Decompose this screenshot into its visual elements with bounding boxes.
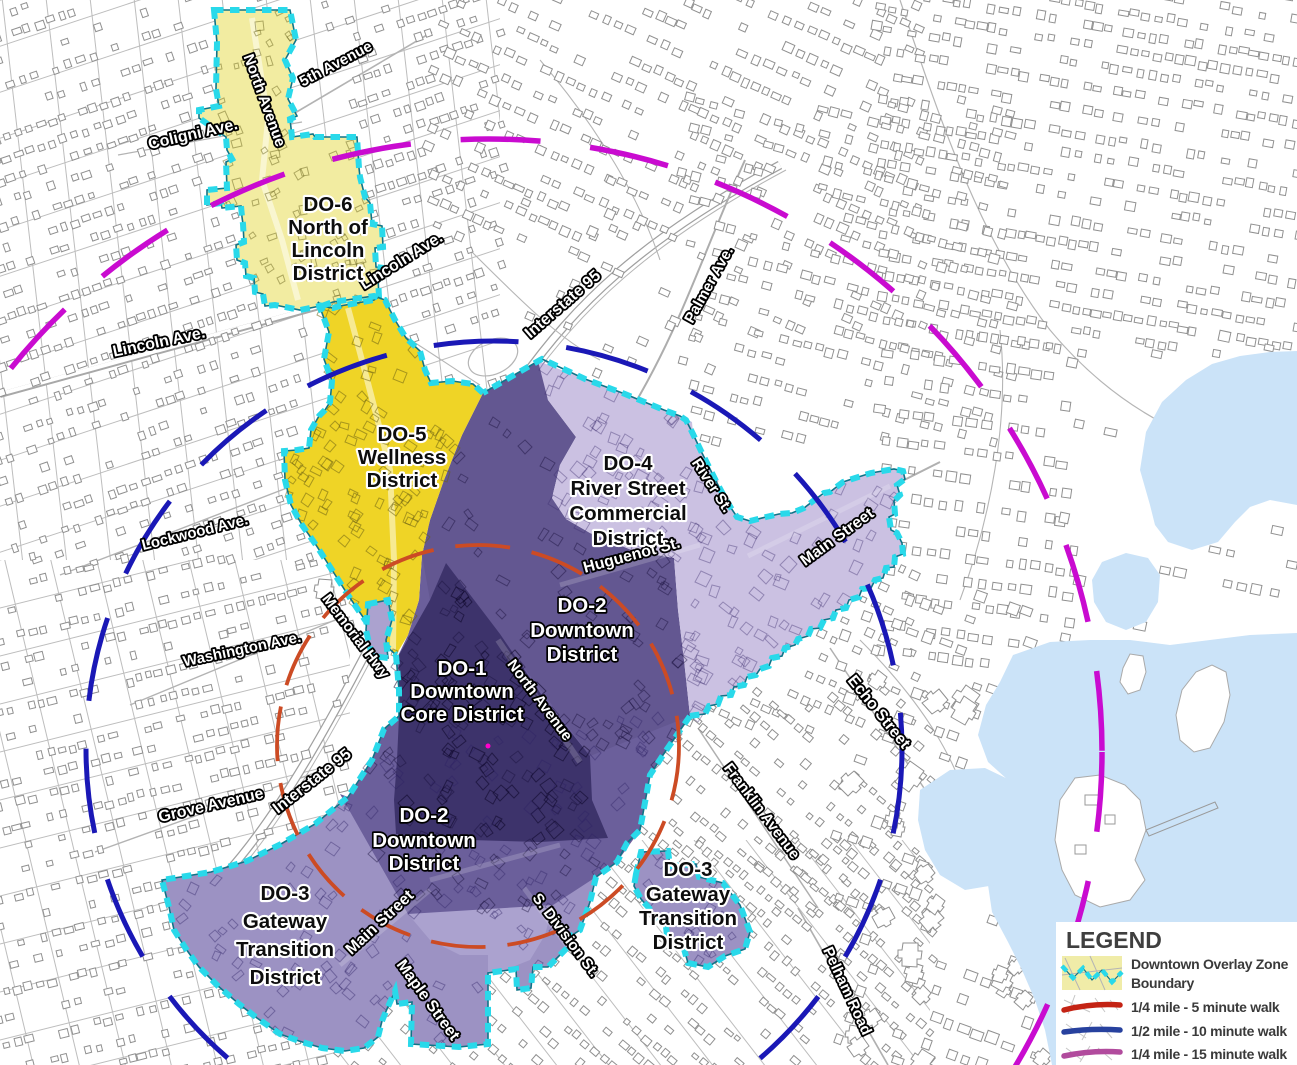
- svg-text:1/2 mile - 10 minute walk: 1/2 mile - 10 minute walk: [1131, 1023, 1287, 1039]
- svg-text:District: District: [250, 966, 321, 989]
- svg-text:1/4 mile - 15 minute walk: 1/4 mile - 15 minute walk: [1131, 1046, 1287, 1062]
- svg-text:Lincoln: Lincoln: [292, 239, 365, 262]
- svg-text:Wellness: Wellness: [358, 446, 447, 469]
- svg-text:LEGEND: LEGEND: [1066, 927, 1162, 953]
- svg-text:DO-6: DO-6: [304, 193, 353, 216]
- svg-text:DO-4: DO-4: [604, 452, 654, 475]
- svg-text:DO-3: DO-3: [664, 858, 713, 881]
- svg-text:DO-2: DO-2: [558, 594, 607, 617]
- svg-text:North of: North of: [288, 216, 368, 239]
- svg-text:Transition: Transition: [236, 938, 334, 961]
- svg-text:Transition: Transition: [639, 907, 737, 930]
- svg-text:Gateway: Gateway: [646, 883, 731, 906]
- svg-text:River Street: River Street: [570, 477, 685, 500]
- svg-text:Downtown Overlay Zone: Downtown Overlay Zone: [1131, 956, 1289, 972]
- svg-text:DO-2: DO-2: [400, 804, 449, 827]
- svg-text:Gateway: Gateway: [243, 910, 328, 933]
- svg-text:District: District: [389, 852, 460, 875]
- svg-text:Boundary: Boundary: [1131, 975, 1194, 991]
- svg-text:Core District: Core District: [400, 703, 523, 726]
- svg-text:District: District: [293, 262, 364, 285]
- svg-text:Downtown: Downtown: [410, 680, 514, 703]
- svg-text:Downtown: Downtown: [372, 829, 476, 852]
- svg-text:District: District: [653, 931, 724, 954]
- svg-text:Commercial: Commercial: [569, 502, 686, 525]
- svg-text:1/4 mile - 5 minute walk: 1/4 mile - 5 minute walk: [1131, 999, 1280, 1015]
- svg-text:DO-3: DO-3: [261, 882, 310, 905]
- svg-text:DO-5: DO-5: [378, 423, 427, 446]
- svg-text:District: District: [593, 527, 664, 550]
- svg-text:District: District: [367, 469, 438, 492]
- svg-text:DO-1: DO-1: [438, 657, 487, 680]
- svg-text:Downtown: Downtown: [530, 619, 634, 642]
- svg-text:District: District: [547, 643, 618, 666]
